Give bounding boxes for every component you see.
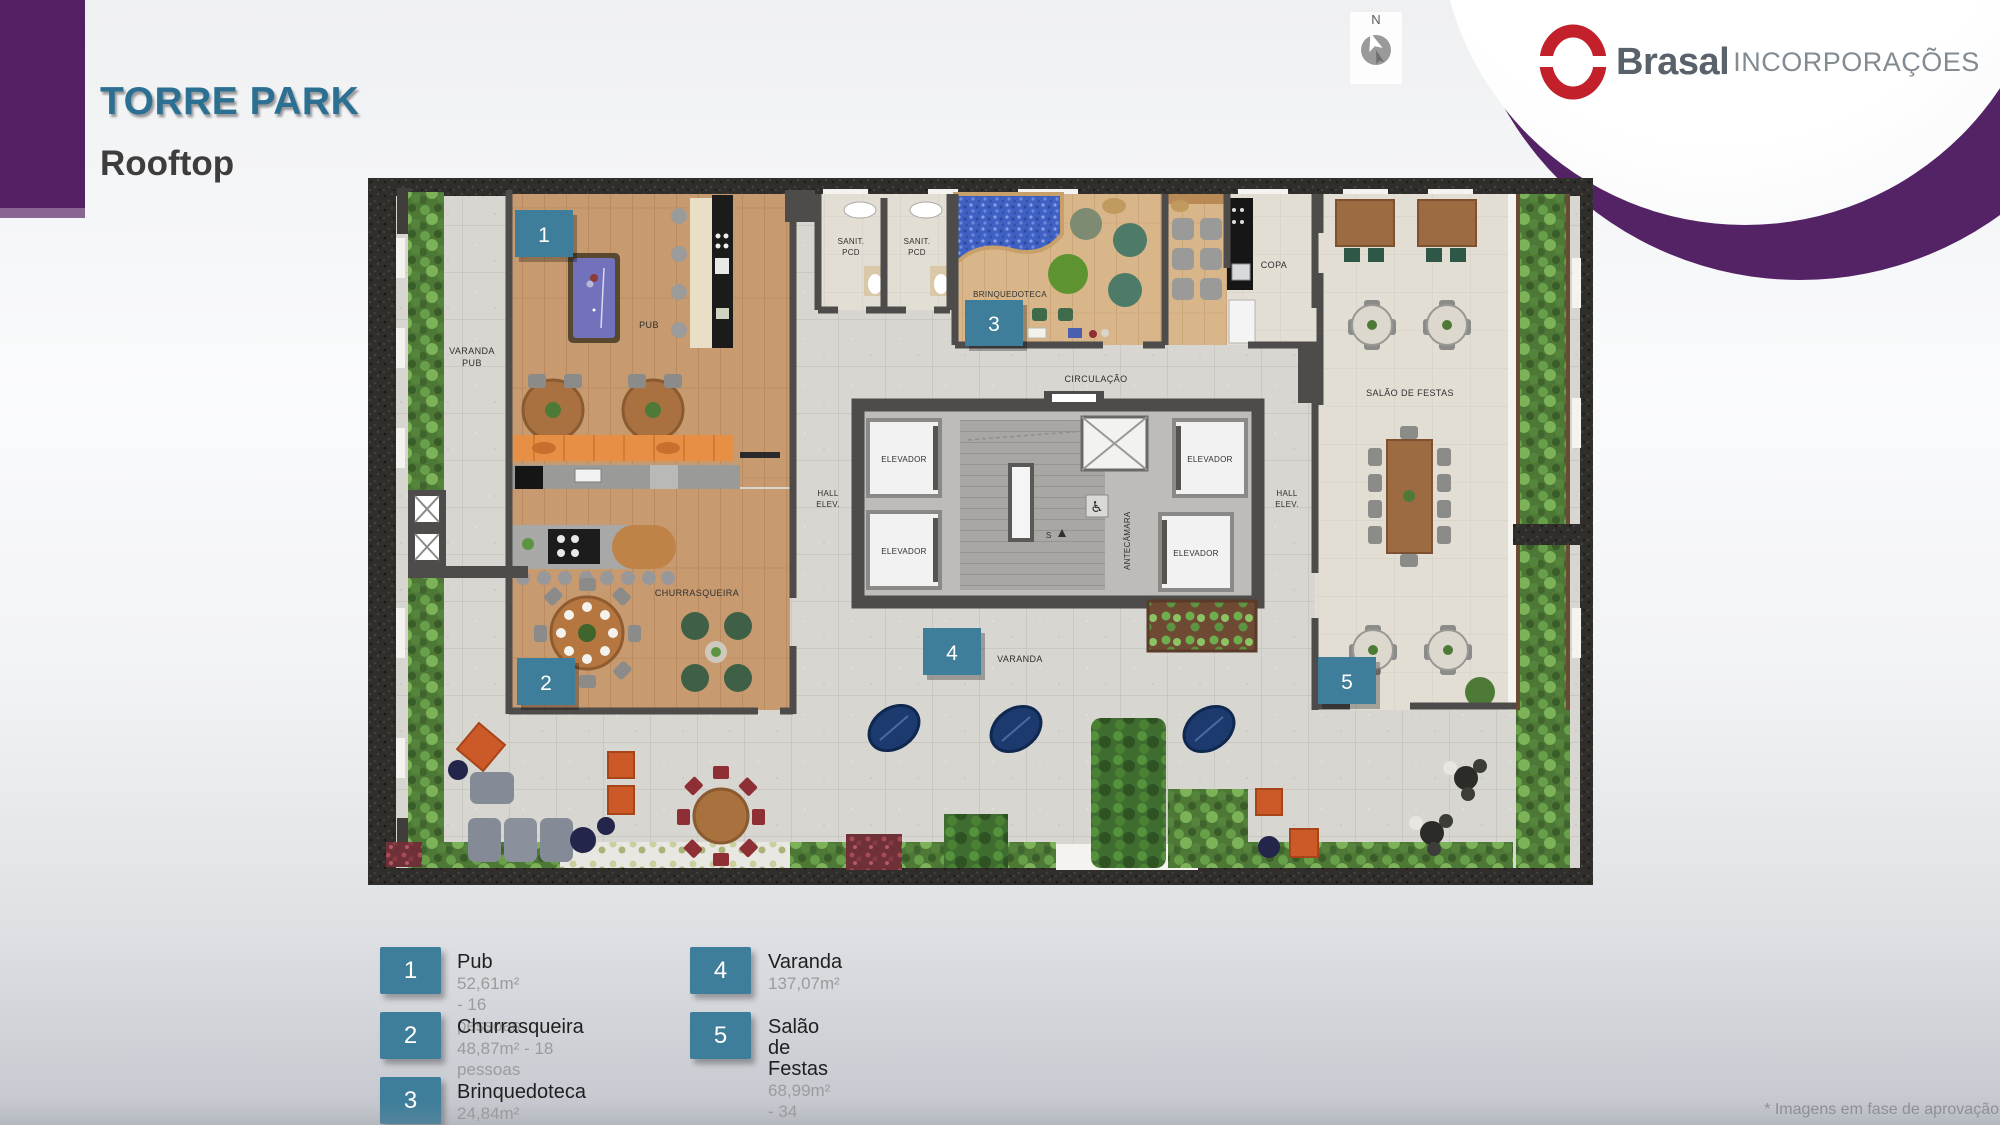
label-brinquedoteca: BRINQUEDOTECA (973, 290, 1047, 299)
logo-suffix: INCORPORAÇÕES (1733, 47, 1980, 78)
label-elevador-3: ELEVADOR (1187, 455, 1232, 464)
label-pub: PUB (639, 320, 659, 330)
svg-text:3: 3 (988, 313, 1000, 336)
label-elevador-4: ELEVADOR (1173, 549, 1218, 558)
plan-badge-2: 2 (517, 658, 579, 710)
label-varanda-pub-1: VARANDA (449, 346, 495, 356)
label-circulacao: CIRCULAÇÃO (1064, 374, 1127, 384)
label-elevador-1: ELEVADOR (881, 455, 926, 464)
legend-sub-churrasqueira: 48,87m² - 18 pessoas (457, 1038, 584, 1080)
floor-plan: ♿ (368, 178, 1593, 885)
room-salao (1315, 194, 1512, 710)
brand-bar (0, 0, 85, 218)
legend-title-churrasqueira: Churrasqueira (457, 1017, 584, 1038)
compass-north-label: N (1350, 12, 1402, 28)
label-hall-right-2: ELEV. (1275, 500, 1298, 509)
label-churrasqueira: CHURRASQUEIRA (655, 588, 739, 598)
label-hall-left-1: HALL (817, 489, 838, 498)
brasal-logo: Brasal INCORPORAÇÕES (1538, 24, 1980, 100)
label-varanda: VARANDA (997, 654, 1043, 664)
svg-text:4: 4 (946, 642, 958, 665)
wall-block-2 (785, 190, 815, 222)
svg-text:1: 1 (538, 224, 550, 247)
label-sanit-left-1: SANIT. (838, 237, 865, 246)
wall-block (1298, 345, 1320, 403)
label-stairs: S (1046, 531, 1052, 540)
legend-title-brinquedoteca: Brinquedoteca (457, 1082, 586, 1103)
label-hall-left-2: ELEV. (816, 500, 839, 509)
logo-name: Brasal (1616, 41, 1729, 84)
label-salao: SALÃO DE FESTAS (1366, 388, 1454, 398)
plan-badge-3: 3 (965, 300, 1027, 351)
legend-title-pub: Pub (457, 952, 520, 973)
label-sanit-right-1: SANIT. (904, 237, 931, 246)
label-sanit-left-2: PCD (842, 248, 860, 257)
page-subtitle: Rooftop (100, 144, 234, 184)
legend-sub-varanda: 137,07m² (768, 973, 842, 994)
plan-badge-1: 1 (515, 210, 577, 262)
label-antecamara: ANTECÂMARA (1123, 511, 1132, 570)
legend-title-salao: Salão de Festas (768, 1017, 831, 1080)
compass-icon (1350, 28, 1402, 72)
label-hall-right-1: HALL (1276, 489, 1297, 498)
slide: TORRE PARK Rooftop Brasal INCORPORAÇÕES … (0, 0, 2000, 1125)
label-elevador-2: ELEVADOR (881, 547, 926, 556)
legend-badge-5: 5 (690, 1012, 751, 1059)
play-nook (1165, 194, 1227, 345)
legend-badge-4: 4 (690, 947, 751, 994)
legend-badge-2: 2 (380, 1012, 441, 1059)
brasal-ring-icon (1538, 24, 1608, 100)
svg-text:2: 2 (540, 672, 552, 695)
legend-title-varanda: Varanda (768, 952, 842, 973)
wheelchair-icon: ♿ (1090, 499, 1103, 516)
legend-badge-1: 1 (380, 947, 441, 994)
compass: N (1350, 12, 1402, 84)
core-elevators: ♿ (858, 391, 1258, 602)
bottom-shade (0, 1103, 2000, 1125)
plan-badge-4: 4 (923, 628, 985, 680)
plan-badge-5: 5 (1318, 657, 1380, 709)
label-varanda-pub-2: PUB (462, 358, 482, 368)
svg-text:5: 5 (1341, 671, 1353, 694)
label-copa: COPA (1261, 260, 1287, 270)
page-title: TORRE PARK (100, 80, 359, 124)
label-sanit-right-2: PCD (908, 248, 926, 257)
disclaimer-text: * Imagens em fase de aprovação (1764, 1101, 1999, 1119)
